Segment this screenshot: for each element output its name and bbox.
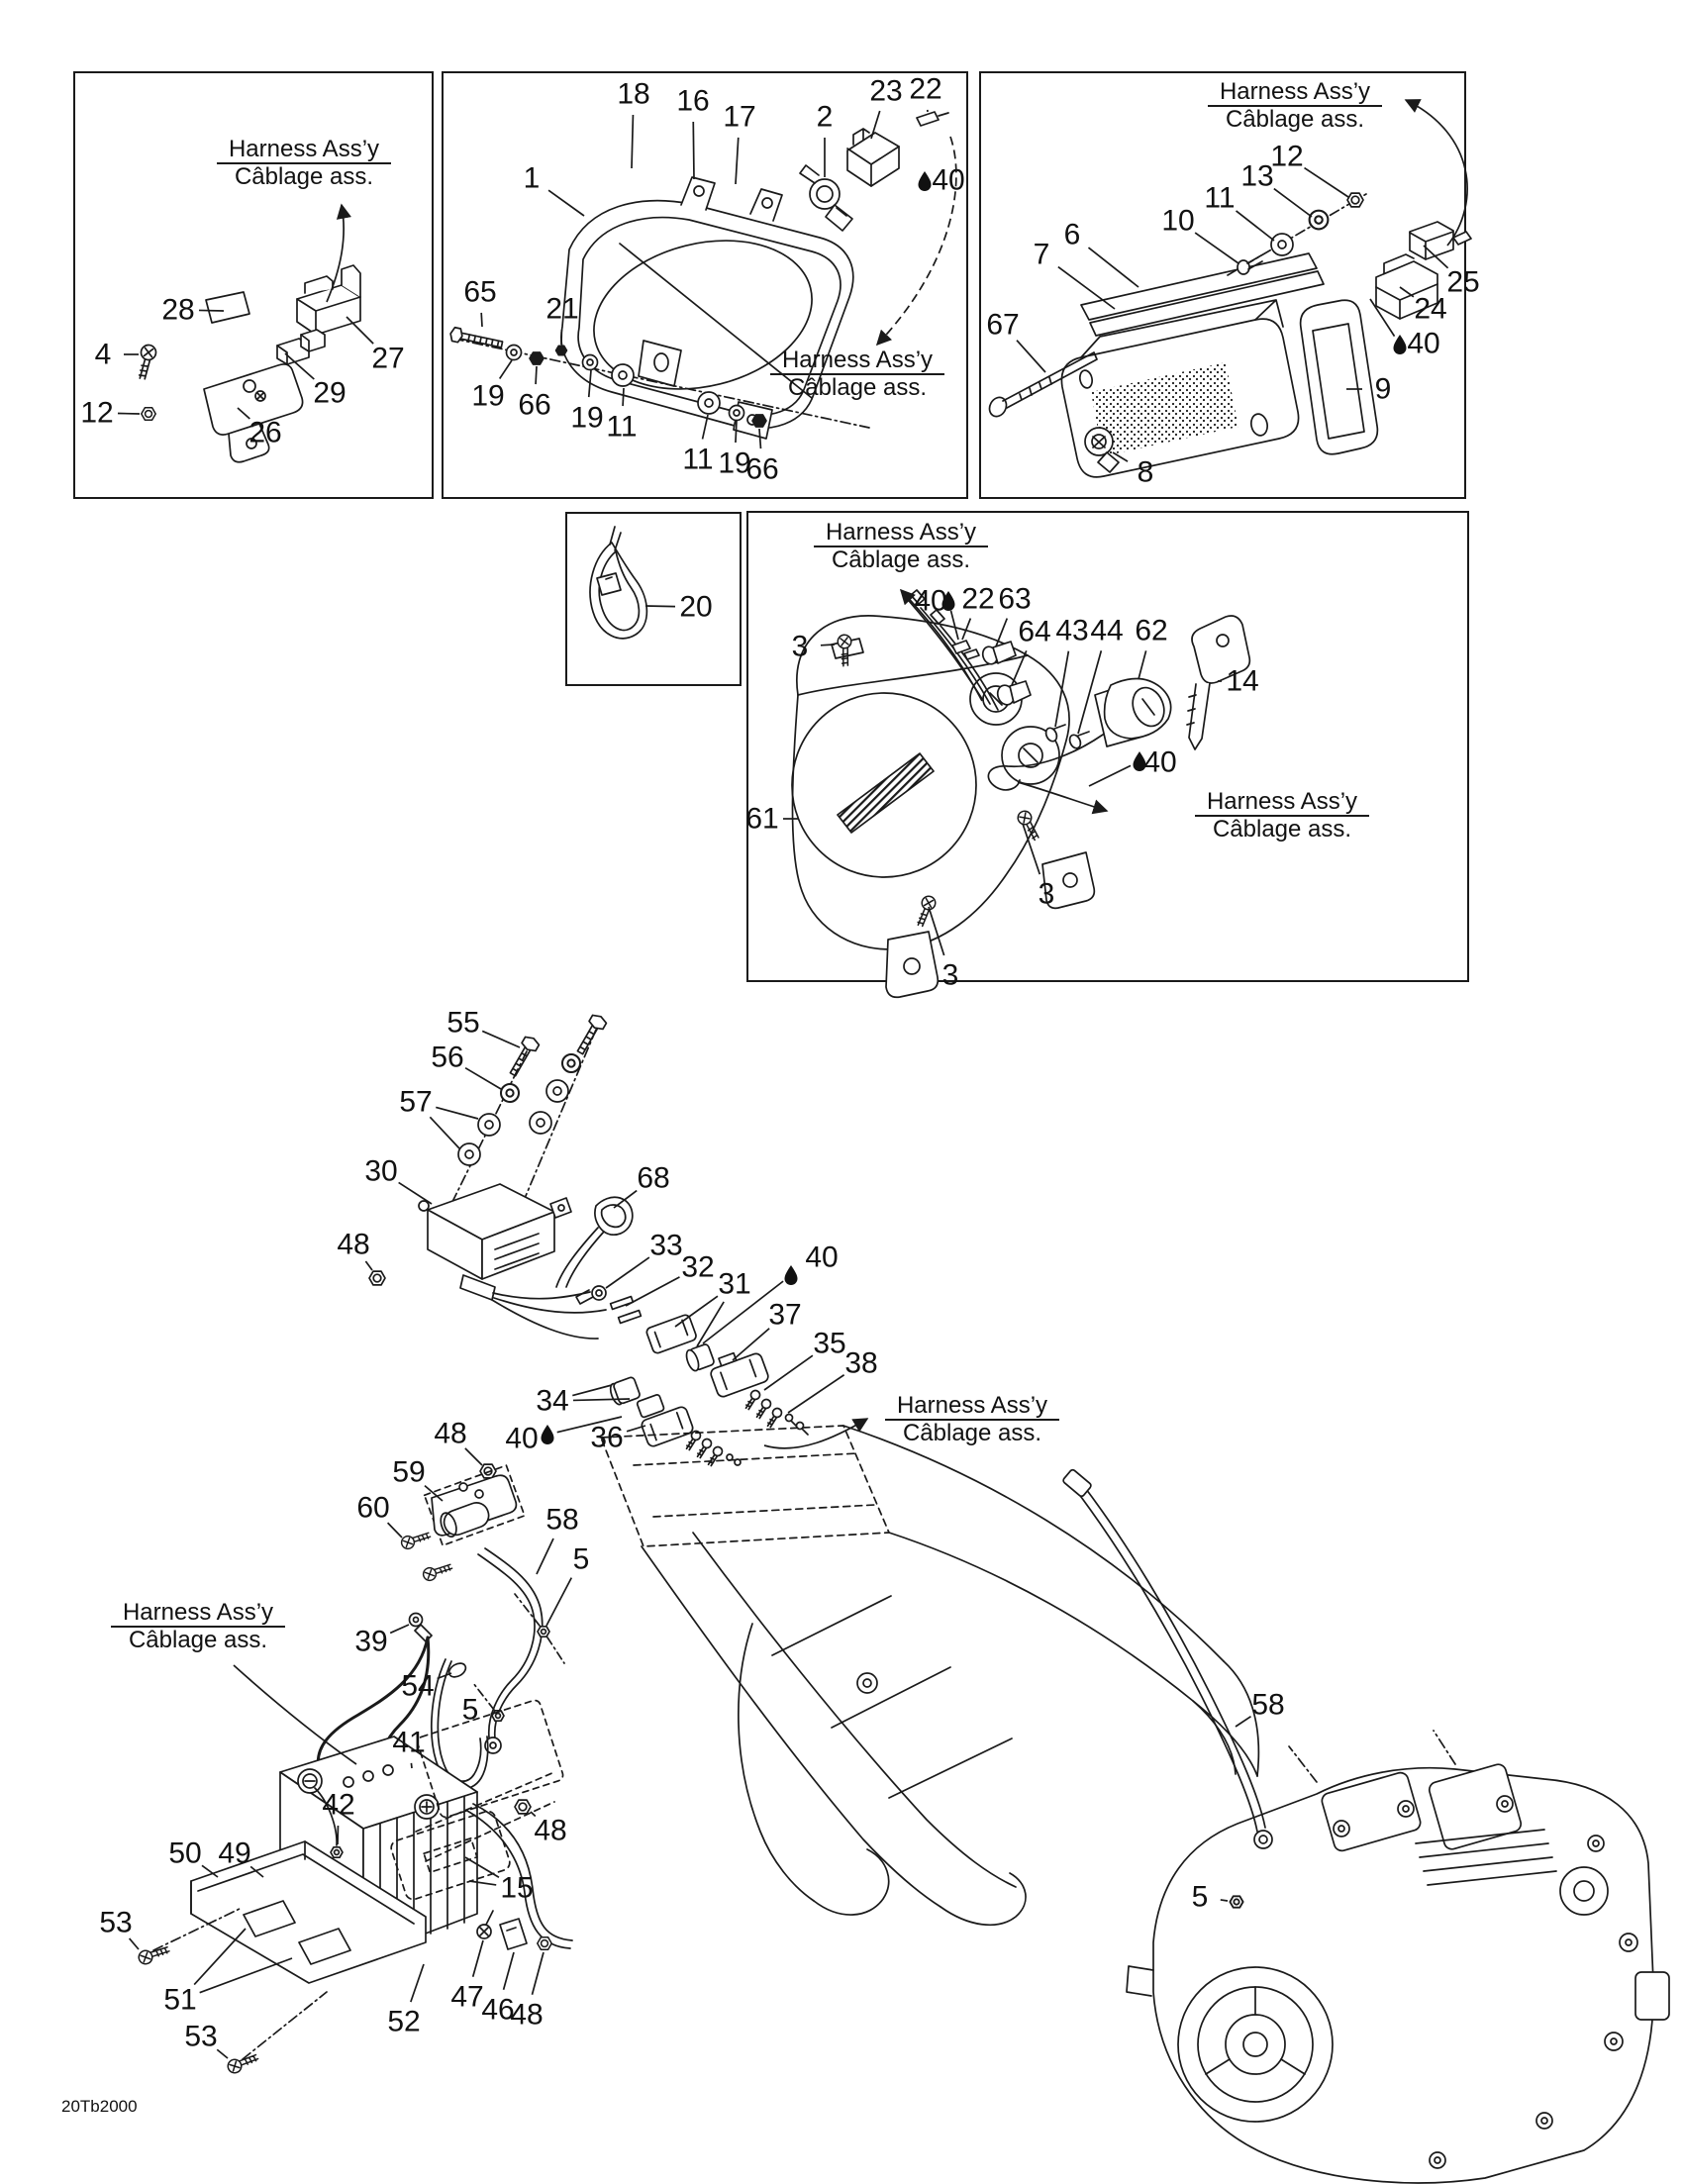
callout-22: 22 — [909, 73, 941, 106]
callout-3: 3 — [792, 631, 809, 663]
leader-line — [1236, 1717, 1251, 1727]
part-number: 11 — [682, 444, 713, 476]
callout-2: 2 — [817, 101, 834, 134]
part-number: 40 — [1143, 746, 1176, 779]
part-number: 55 — [446, 1007, 479, 1040]
leader-line — [1274, 189, 1312, 217]
callout-49: 49 — [218, 1837, 250, 1870]
parts-diagram-sheet: 2841226292711816172232240652119661911111… — [0, 0, 1683, 2184]
leader-line — [199, 310, 224, 311]
part-number: 19 — [471, 380, 504, 413]
leader-line — [1089, 765, 1131, 786]
harness-label-fr: Câblage ass. — [903, 1420, 1041, 1446]
callout-61: 61 — [745, 803, 778, 836]
leader-line — [390, 1625, 409, 1633]
callout-22: 22 — [961, 583, 994, 616]
callout-5: 5 — [1192, 1881, 1209, 1914]
callout-36: 36 — [590, 1422, 623, 1454]
callout-43: 43 — [1055, 615, 1088, 647]
leader-line — [645, 606, 675, 607]
harness-label-en: Harness Ass’y — [826, 519, 976, 546]
harness-label-fr: Câblage ass. — [832, 546, 970, 573]
leader-line — [764, 1355, 813, 1390]
leader-line — [411, 1964, 424, 2002]
harness-label-5: Harness Ass’yCâblage ass. — [1018, 782, 1369, 843]
part-number: 25 — [1446, 266, 1479, 299]
callout-42: 42 — [322, 1789, 354, 1822]
leader-line — [548, 190, 584, 216]
leader-line — [626, 1277, 679, 1306]
callout-13: 13 — [1240, 160, 1273, 193]
part-number: 68 — [637, 1162, 669, 1195]
leader-line — [504, 1952, 514, 1990]
part-number: 18 — [617, 78, 649, 111]
part-number: 26 — [248, 417, 281, 449]
part-number: 5 — [462, 1694, 479, 1727]
part-number: 1 — [524, 162, 541, 195]
leader-line — [1221, 1900, 1228, 1901]
callout-66: 66 — [745, 453, 778, 486]
gauge-cluster-illustration — [792, 590, 1249, 997]
part-number: 22 — [909, 73, 941, 106]
part-number: 37 — [768, 1299, 801, 1332]
part-number: 48 — [337, 1229, 369, 1261]
part-number: 47 — [450, 1981, 483, 2014]
leader-line — [606, 1257, 649, 1288]
harness-label-7: Harness Ass’yCâblage ass. — [111, 1599, 356, 1764]
callout-47: 47 — [450, 1981, 483, 2014]
callout-34: 34 — [536, 1385, 568, 1418]
callout-37: 37 — [768, 1299, 801, 1332]
leader-line — [1088, 248, 1138, 287]
part-number: 63 — [998, 583, 1031, 616]
part-number: 34 — [536, 1385, 568, 1418]
cable-tie-illustration — [590, 527, 646, 639]
callout-65: 65 — [463, 276, 496, 309]
harness-label-6: Harness Ass’yCâblage ass. — [764, 1392, 1059, 1448]
callout-17: 17 — [723, 101, 755, 134]
part-number: 65 — [463, 276, 496, 309]
part-number: 10 — [1161, 205, 1194, 238]
callout-52: 52 — [387, 2006, 420, 2038]
callout-48: 48 — [534, 1815, 566, 1847]
harness-label-en: Harness Ass’y — [123, 1599, 273, 1626]
callout-48: 48 — [337, 1229, 369, 1261]
callout-12: 12 — [80, 397, 113, 430]
illustrations — [137, 112, 1669, 2183]
part-number: 42 — [322, 1789, 354, 1822]
part-number: 56 — [431, 1042, 463, 1074]
leader-line — [399, 1182, 432, 1204]
leader-line — [623, 388, 624, 406]
callout-3: 3 — [942, 959, 959, 992]
part-number: 7 — [1034, 239, 1050, 271]
part-number: 44 — [1090, 615, 1123, 647]
harness-label-en: Harness Ass’y — [782, 347, 933, 373]
part-number: 35 — [813, 1328, 845, 1360]
part-number: 60 — [356, 1492, 389, 1525]
leader-line — [821, 645, 835, 645]
callout-55: 55 — [446, 1007, 479, 1040]
leader-line — [1058, 267, 1115, 309]
callout-23: 23 — [869, 75, 902, 108]
part-number: 3 — [1039, 878, 1055, 911]
callout-60: 60 — [356, 1492, 389, 1525]
callout-20: 20 — [679, 591, 712, 624]
callout-41: 41 — [392, 1727, 425, 1759]
leader-line — [1237, 211, 1274, 241]
part-number: 3 — [942, 959, 959, 992]
leader-line — [465, 1068, 501, 1089]
callout-57: 57 — [399, 1086, 432, 1119]
callout-25: 25 — [1446, 266, 1479, 299]
part-number: 48 — [510, 1999, 543, 2032]
part-number: 30 — [364, 1155, 397, 1188]
leader-line — [536, 366, 537, 384]
part-number: 17 — [723, 101, 755, 134]
callout-30: 30 — [364, 1155, 397, 1188]
part-number: 54 — [401, 1670, 434, 1703]
callout-14: 14 — [1226, 665, 1258, 698]
callout-5: 5 — [462, 1694, 479, 1727]
part-number: 64 — [1018, 616, 1050, 648]
callout-15: 15 — [500, 1872, 533, 1905]
part-number: 28 — [161, 294, 194, 327]
part-number: 58 — [1251, 1689, 1284, 1722]
part-number: 12 — [1270, 141, 1303, 173]
callout-4: 4 — [95, 339, 112, 371]
callout-19: 19 — [471, 380, 504, 413]
part-number: 50 — [168, 1837, 201, 1870]
loctite-droplet-icon — [1394, 335, 1407, 354]
callout-40: 40 — [785, 1241, 839, 1286]
part-number: 61 — [745, 803, 778, 836]
harness-label-en: Harness Ass’y — [1220, 78, 1370, 105]
part-number: 33 — [649, 1230, 682, 1262]
leader-line — [532, 1952, 544, 1995]
callout-31: 31 — [718, 1268, 750, 1301]
part-number: 4 — [95, 339, 112, 371]
callout-21: 21 — [545, 293, 578, 326]
callout-50: 50 — [168, 1837, 201, 1870]
part-number: 40 — [805, 1241, 838, 1274]
part-number: 23 — [869, 75, 902, 108]
leader-line — [388, 1523, 402, 1538]
leader-line — [481, 313, 482, 327]
part-number: 21 — [545, 293, 578, 326]
part-number: 67 — [986, 309, 1019, 342]
part-number: 58 — [545, 1504, 578, 1537]
callout-68: 68 — [637, 1162, 669, 1195]
leader-line — [632, 115, 633, 168]
leader-line — [482, 1031, 520, 1047]
leader-line — [465, 1448, 482, 1465]
callout-7: 7 — [1034, 239, 1050, 271]
part-number: 24 — [1414, 293, 1446, 326]
callout-26: 26 — [248, 417, 281, 449]
callout-16: 16 — [676, 85, 709, 118]
harness-label-fr: Câblage ass. — [788, 374, 927, 401]
part-number: 13 — [1240, 160, 1273, 193]
part-number: 12 — [80, 397, 113, 430]
callout-54: 54 — [401, 1670, 434, 1703]
part-number: 9 — [1375, 373, 1392, 406]
callout-48: 48 — [434, 1418, 466, 1450]
harness-label-fr: Câblage ass. — [235, 163, 373, 190]
part-number: 31 — [718, 1268, 750, 1301]
loctite-droplet-icon — [919, 171, 932, 191]
harness-label-fr: Câblage ass. — [129, 1627, 267, 1653]
harness-arrow — [234, 1665, 356, 1764]
callout-6: 6 — [1064, 219, 1081, 251]
part-number: 59 — [392, 1456, 425, 1489]
part-number: 16 — [676, 85, 709, 118]
leader-line — [473, 1940, 483, 1977]
part-number: 57 — [399, 1086, 432, 1119]
part-number: 5 — [573, 1543, 590, 1576]
part-number: 3 — [792, 631, 809, 663]
callout-59: 59 — [392, 1456, 425, 1489]
callout-10: 10 — [1161, 205, 1194, 238]
callout-18: 18 — [617, 78, 649, 111]
part-number: 40 — [914, 585, 946, 618]
leader-line — [130, 1938, 139, 1949]
taillight-illustration — [986, 193, 1471, 477]
leader-line — [500, 360, 512, 379]
leader-line — [194, 1929, 246, 1985]
part-number: 29 — [313, 377, 346, 410]
part-number: 8 — [1138, 456, 1154, 489]
callout-1: 1 — [524, 162, 541, 195]
part-number: 43 — [1055, 615, 1088, 647]
callout-38: 38 — [844, 1347, 877, 1380]
part-number: 11 — [1204, 182, 1235, 215]
callout-24: 24 — [1414, 293, 1446, 326]
callout-3: 3 — [1039, 878, 1055, 911]
part-number: 36 — [590, 1422, 623, 1454]
callout-9: 9 — [1375, 373, 1392, 406]
part-number: 40 — [1407, 328, 1439, 360]
leader-line — [537, 1539, 553, 1574]
leader-line — [693, 122, 694, 179]
leader-line — [365, 1261, 372, 1270]
part-number: 48 — [434, 1418, 466, 1450]
part-number: 48 — [534, 1815, 566, 1847]
harness-label-en: Harness Ass’y — [229, 136, 379, 162]
harness-label-fr: Câblage ass. — [1213, 816, 1351, 843]
callout-11: 11 — [682, 444, 713, 476]
engine-illustration — [1127, 1731, 1669, 2183]
leader-line — [788, 1375, 844, 1413]
leader-line — [118, 413, 140, 414]
callout-58: 58 — [545, 1504, 578, 1537]
leader-line — [430, 1117, 459, 1148]
callout-62: 62 — [1135, 615, 1167, 647]
leader-line — [436, 1107, 478, 1119]
part-number: 39 — [354, 1626, 387, 1658]
leader-line — [411, 1763, 412, 1768]
part-number: 66 — [745, 453, 778, 486]
callout-35: 35 — [813, 1328, 845, 1360]
part-number: 20 — [679, 591, 712, 624]
part-number: 53 — [184, 2021, 217, 2053]
part-number: 66 — [518, 389, 550, 422]
callout-40: 40 — [505, 1423, 553, 1455]
callout-28: 28 — [161, 294, 194, 327]
leader-line — [1017, 341, 1045, 372]
part-number: 19 — [570, 402, 603, 435]
part-number: 32 — [681, 1251, 714, 1284]
part-number: 49 — [218, 1837, 250, 1870]
callout-11: 11 — [1204, 182, 1235, 215]
callout-39: 39 — [354, 1626, 387, 1658]
part-number: 53 — [99, 1907, 132, 1939]
callout-67: 67 — [986, 309, 1019, 342]
sheet-code: 20Tb2000 — [61, 2097, 138, 2116]
callout-44: 44 — [1090, 615, 1123, 647]
part-number: 2 — [817, 101, 834, 134]
callout-48: 48 — [510, 1999, 543, 2032]
callout-56: 56 — [431, 1042, 463, 1074]
part-number: 27 — [371, 343, 404, 375]
callout-63: 63 — [998, 583, 1031, 616]
leader-line — [1305, 168, 1348, 197]
loctite-droplet-icon — [785, 1265, 798, 1285]
callout-8: 8 — [1138, 456, 1154, 489]
callout-51: 51 — [163, 1984, 196, 2017]
part-number: 51 — [163, 1984, 196, 2017]
leader-line — [1078, 650, 1101, 734]
diagram-canvas: 2841226292711816172232240652119661911111… — [0, 0, 1683, 2184]
callout-40: 40 — [919, 164, 965, 197]
leader-line — [572, 1385, 612, 1396]
callout-53: 53 — [184, 2021, 217, 2053]
part-number: 62 — [1135, 615, 1167, 647]
callout-27: 27 — [371, 343, 404, 375]
harness-label-en: Harness Ass’y — [897, 1392, 1047, 1419]
part-number: 41 — [392, 1727, 425, 1759]
leader-line — [736, 421, 737, 443]
callout-53: 53 — [99, 1907, 132, 1939]
part-number: 22 — [961, 583, 994, 616]
part-number: 6 — [1064, 219, 1081, 251]
callout-66: 66 — [518, 389, 550, 422]
leader-line — [736, 138, 739, 184]
callout-11: 11 — [606, 411, 637, 444]
callout-40: 40 — [1394, 328, 1440, 360]
part-number: 11 — [606, 411, 637, 444]
leader-line — [1195, 233, 1238, 263]
harness-label-fr: Câblage ass. — [1226, 106, 1364, 133]
leader-line — [1138, 650, 1146, 679]
callout-32: 32 — [681, 1251, 714, 1284]
callout-33: 33 — [649, 1230, 682, 1262]
part-number: 38 — [844, 1347, 877, 1380]
leader-line — [217, 2049, 228, 2058]
part-number: 14 — [1226, 665, 1258, 698]
callout-5: 5 — [573, 1543, 590, 1576]
callout-64: 64 — [1018, 616, 1050, 648]
part-number: 5 — [1192, 1881, 1209, 1914]
callout-58: 58 — [1251, 1689, 1284, 1722]
harness-label-en: Harness Ass’y — [1207, 788, 1357, 815]
callout-40: 40 — [1134, 746, 1177, 779]
harness-label-1: Harness Ass’yCâblage ass. — [217, 136, 391, 302]
callout-29: 29 — [313, 377, 346, 410]
part-number: 52 — [387, 2006, 420, 2038]
part-number: 40 — [932, 164, 964, 197]
callout-19: 19 — [570, 402, 603, 435]
part-number: 15 — [500, 1872, 533, 1905]
part-number: 40 — [505, 1423, 538, 1455]
callout-12: 12 — [1270, 141, 1303, 173]
leader-line — [546, 1578, 571, 1626]
loctite-droplet-icon — [542, 1425, 554, 1444]
